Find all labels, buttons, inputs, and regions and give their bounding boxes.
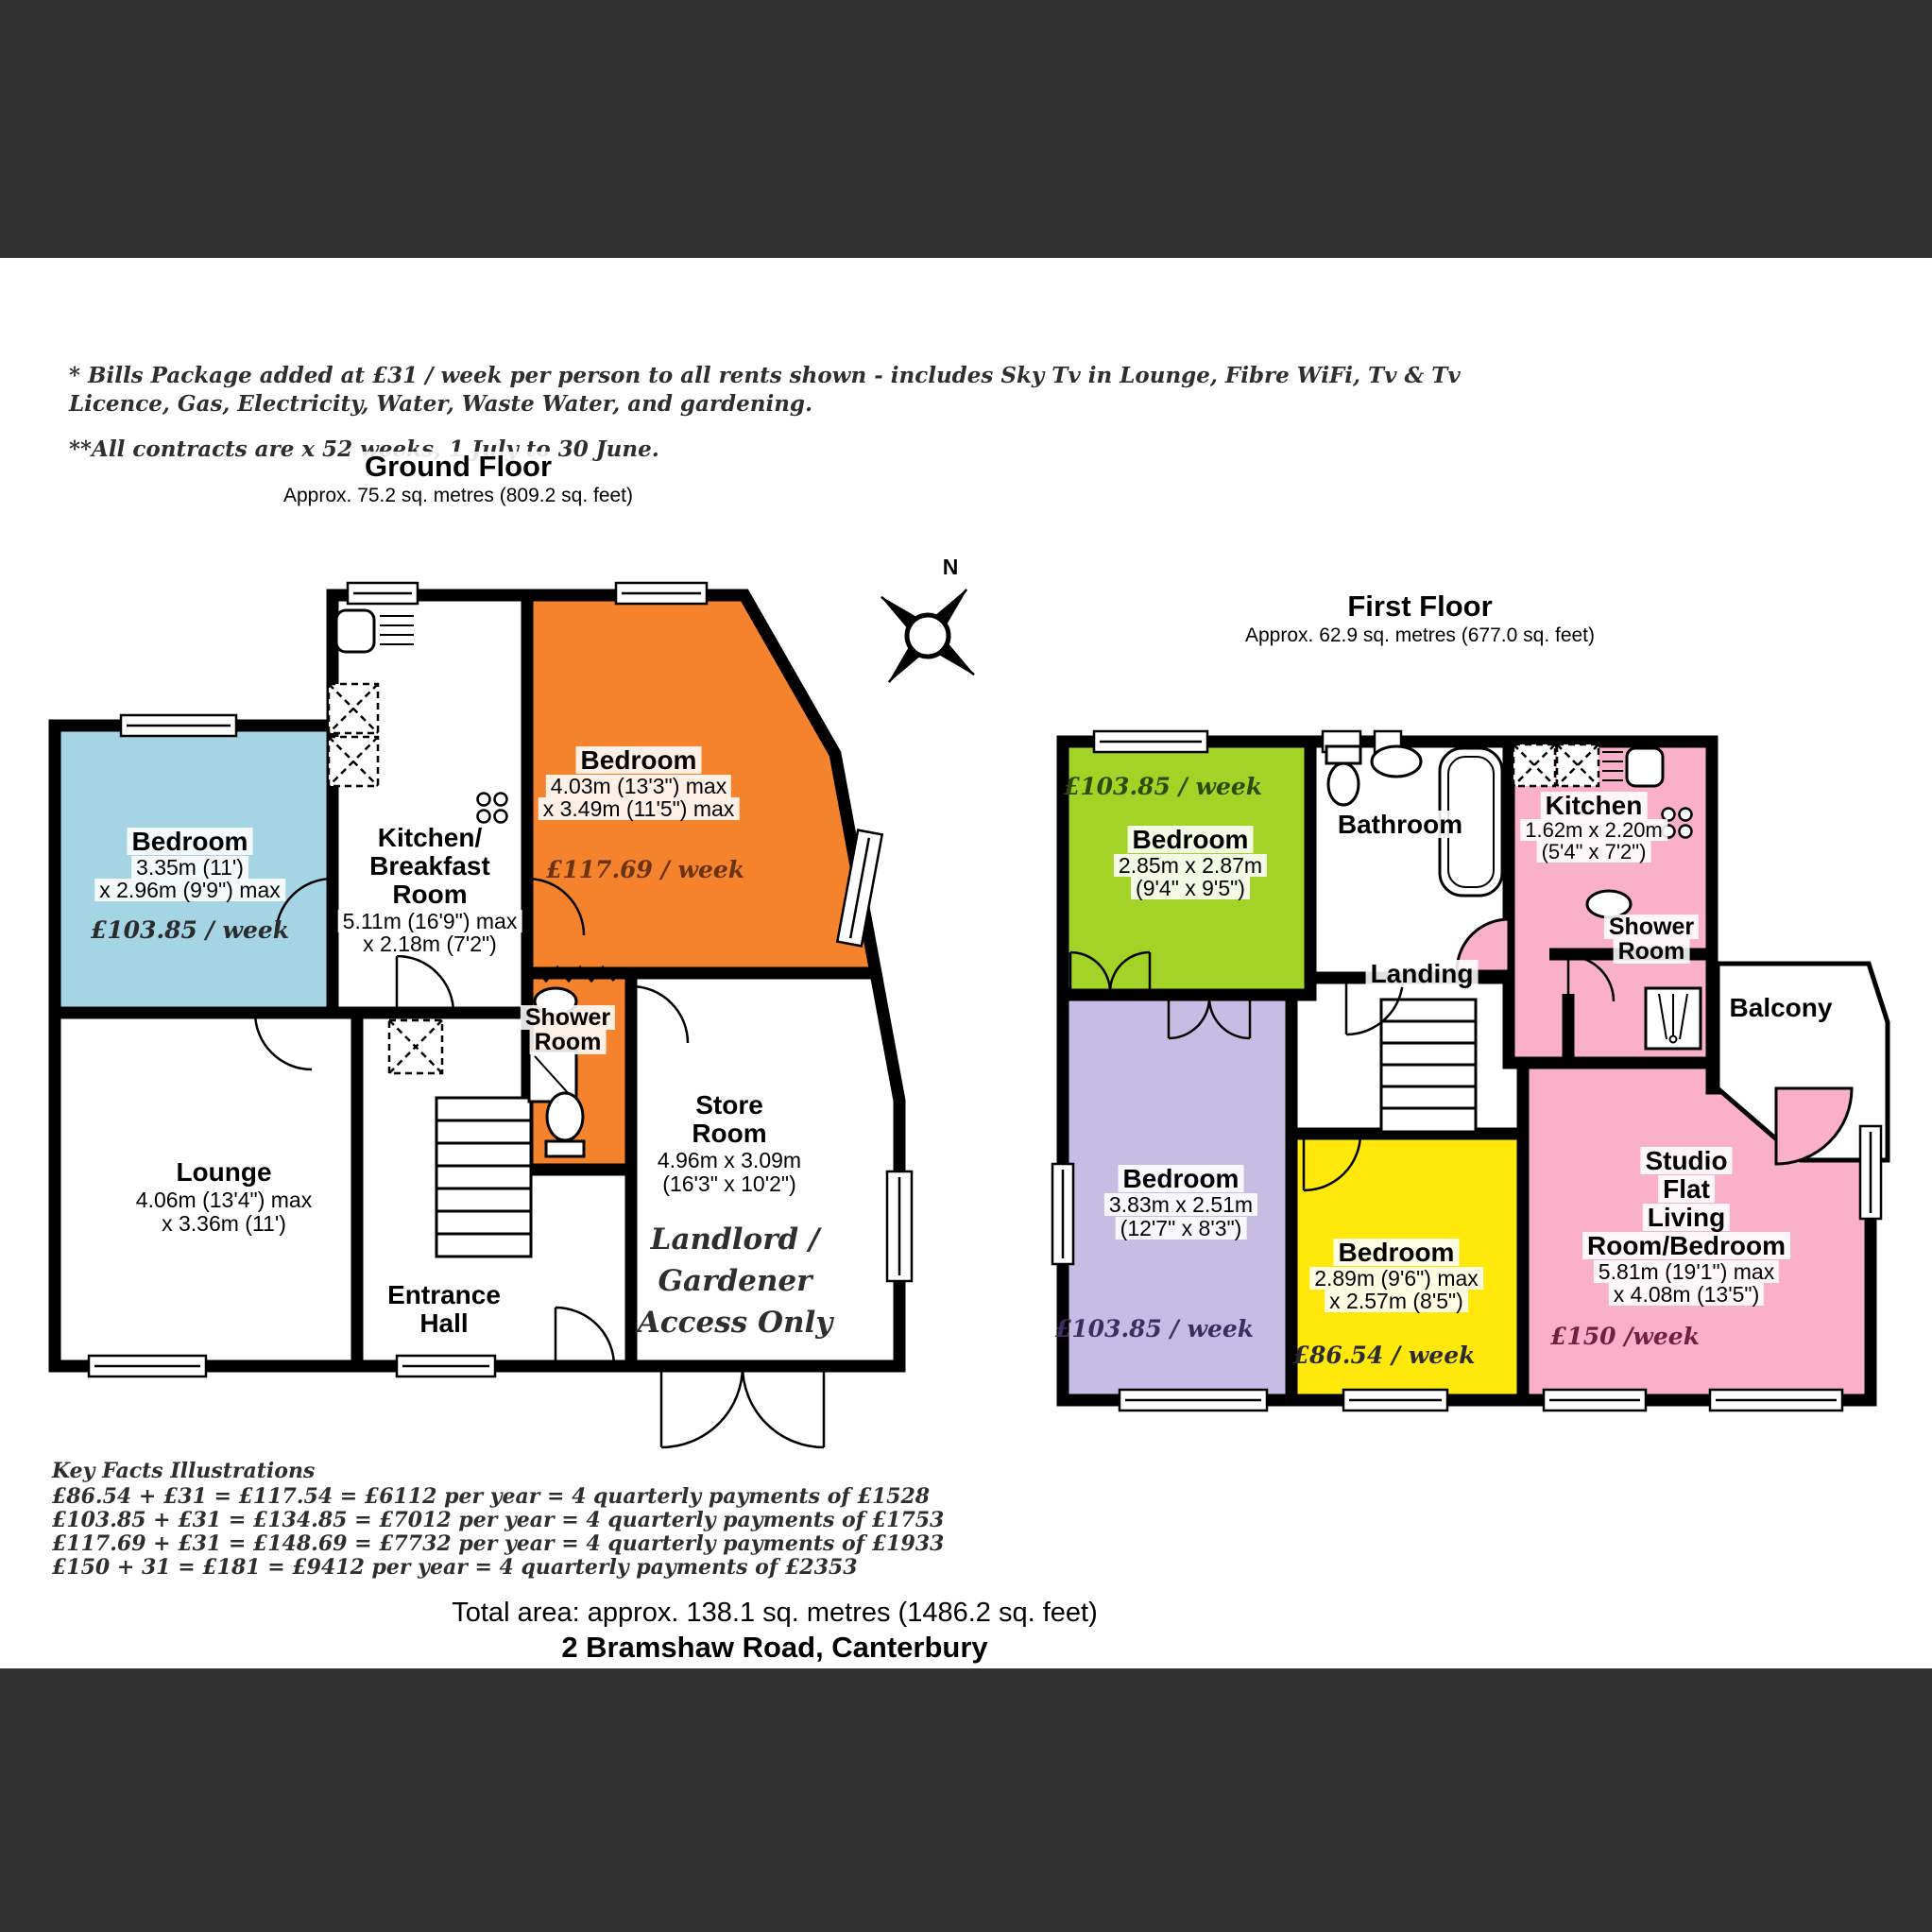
- hob: [495, 811, 507, 823]
- gf-store-name1: Store: [691, 1091, 768, 1119]
- gf-kitchen-name3: Room: [387, 881, 471, 908]
- gf-bedroom-front-price: £103.85 / week: [86, 918, 294, 943]
- basin: [1372, 746, 1421, 777]
- gf-store-dim1: 4.96m x 3.09m: [653, 1149, 806, 1171]
- key-facts-line2: £103.85 + £31 = £134.85 = £7012 per year…: [52, 1508, 944, 1532]
- first-floor-subtitle: Approx. 62.9 sq. metres (677.0 sq. feet): [1240, 625, 1599, 646]
- gf-bedroom-rear-dim2: x 3.49m (11'5") max: [539, 797, 740, 820]
- gf-kitchen-name1: Kitchen/: [373, 824, 487, 851]
- hob: [1680, 809, 1692, 821]
- ff-bedroom-green-dim2: (9'4" x 9'5"): [1131, 877, 1250, 899]
- gf-store-name2: Room: [687, 1120, 771, 1147]
- floorplan-page: * Bills Package added at £31 / week per …: [0, 0, 1932, 1932]
- ff-studio-name4: Room/Bedroom: [1582, 1232, 1790, 1259]
- first-floor-title: First Floor: [1342, 591, 1496, 623]
- compass-rose-icon: [843, 551, 1013, 721]
- ff-balcony-name: Balcony: [1725, 994, 1838, 1021]
- ff-studio-dim1: 5.81m (19'1") max: [1594, 1260, 1779, 1283]
- ff-bedroom-purple-name: Bedroom: [1119, 1165, 1244, 1192]
- key-facts-line1: £86.54 + £31 = £117.54 = £6112 per year …: [52, 1484, 930, 1509]
- bills-note-line2: Licence, Gas, Electricity, Water, Waste …: [69, 391, 812, 417]
- ff-bedroom-yellow-dim1: 2.89m (9'6") max: [1309, 1267, 1483, 1290]
- address-text: 2 Bramshaw Road, Canterbury: [556, 1633, 992, 1664]
- ff-bedroom-green-price: £103.85 / week: [1059, 775, 1267, 799]
- gf-kitchen-dim1: 5.11m (16'9") max: [338, 910, 522, 932]
- ff-bedroom-purple-dim1: 3.83m x 2.51m: [1104, 1193, 1257, 1216]
- total-area-text: Total area: approx. 138.1 sq. metres (14…: [447, 1599, 1103, 1627]
- ff-bathroom-name: Bathroom: [1333, 811, 1467, 838]
- gf-landlord-note1: Landlord /: [651, 1222, 820, 1257]
- gf-bedroom-front-dim2: x 2.96m (9'9") max: [94, 879, 285, 901]
- ff-kitchen-dim1: 1.62m x 2.20m: [1520, 819, 1667, 841]
- key-facts-title: Key Facts Illustrations: [52, 1459, 315, 1483]
- gf-lounge-name: Lounge: [171, 1158, 276, 1186]
- ff-bedroom-yellow-price: £86.54 / week: [1289, 1343, 1480, 1368]
- hob: [478, 811, 490, 823]
- ff-landing-name: Landing: [1366, 960, 1479, 987]
- ff-studio-dim2: x 4.08m (13'5"): [1609, 1283, 1764, 1306]
- toilet-tank: [1326, 746, 1360, 763]
- ff-stairs: [1381, 1000, 1476, 1132]
- ff-bedroom-yellow-dim2: x 2.57m (8'5"): [1325, 1290, 1468, 1312]
- kitchen-sink: [1627, 748, 1663, 786]
- ff-bedroom-green-dim1: 2.85m x 2.87m: [1114, 854, 1267, 877]
- ff-shower-name1: Shower: [1604, 915, 1699, 939]
- gf-kitchen-dim2: x 2.18m (7'2"): [358, 932, 502, 955]
- bills-note-line1: * Bills Package added at £31 / week per …: [69, 363, 1461, 388]
- ff-studio-price: £150 /week: [1546, 1325, 1704, 1349]
- ff-kitchen-dim2: (5'4" x 7'2"): [1537, 841, 1651, 863]
- toilet: [1328, 763, 1359, 805]
- landlord-double-door-arc: [661, 1366, 824, 1447]
- compass-north-label: N: [938, 556, 964, 578]
- ff-bedroom-yellow-name: Bedroom: [1334, 1239, 1460, 1266]
- gf-lounge-dim2: x 3.36m (11'): [157, 1212, 291, 1235]
- hob: [478, 794, 490, 806]
- ff-studio-name1: Studio: [1640, 1147, 1732, 1174]
- ff-kitchen-name: Kitchen: [1541, 792, 1648, 819]
- gf-landlord-note3: Access Only: [638, 1306, 833, 1340]
- gf-entrance-name1: Entrance: [383, 1281, 505, 1308]
- hob: [495, 794, 507, 806]
- ff-bedroom-green-name: Bedroom: [1128, 826, 1254, 853]
- toilet-base: [546, 1141, 584, 1156]
- ff-studio-name2: Flat: [1658, 1175, 1715, 1203]
- gf-kitchen-name2: Breakfast: [365, 852, 495, 880]
- gf-shower-name2: Room: [530, 1030, 607, 1054]
- gf-landlord-note2: Gardener: [658, 1264, 812, 1298]
- gf-store-dim2: (16'3" x 10'2"): [658, 1172, 800, 1195]
- gf-lounge-dim1: 4.06m (13'4") max: [131, 1188, 316, 1211]
- gf-stairs: [436, 1098, 531, 1257]
- ff-bedroom-purple-price: £103.85 / week: [1051, 1317, 1258, 1342]
- gf-bedroom-front-name: Bedroom: [128, 828, 253, 855]
- ff-bedroom-purple-dim2: (12'7" x 8'3"): [1116, 1217, 1247, 1240]
- ff-shower-name2: Room: [1614, 939, 1690, 964]
- key-facts-line4: £150 + 31 = £181 = £9412 per year = 4 qu…: [52, 1555, 858, 1580]
- gf-bedroom-front-dim1: 3.35m (11'): [131, 856, 248, 879]
- gf-bedroom-rear-price: £117.69 / week: [541, 858, 749, 882]
- key-facts-line3: £117.69 + £31 = £148.69 = £7732 per year…: [52, 1531, 944, 1556]
- kitchen-sink: [336, 610, 374, 652]
- ground-floor-subtitle: Approx. 75.2 sq. metres (809.2 sq. feet): [279, 486, 638, 506]
- gf-shower-name1: Shower: [521, 1005, 615, 1030]
- toilet: [547, 1093, 583, 1140]
- gf-entrance-name2: Hall: [415, 1309, 472, 1337]
- gf-bedroom-rear-dim1: 4.03m (13'3") max: [546, 775, 731, 797]
- ff-studio-name3: Living: [1643, 1204, 1730, 1231]
- gf-bedroom-rear-name: Bedroom: [576, 746, 702, 774]
- hob: [1680, 826, 1692, 838]
- ground-floor-title: Ground Floor: [360, 452, 556, 483]
